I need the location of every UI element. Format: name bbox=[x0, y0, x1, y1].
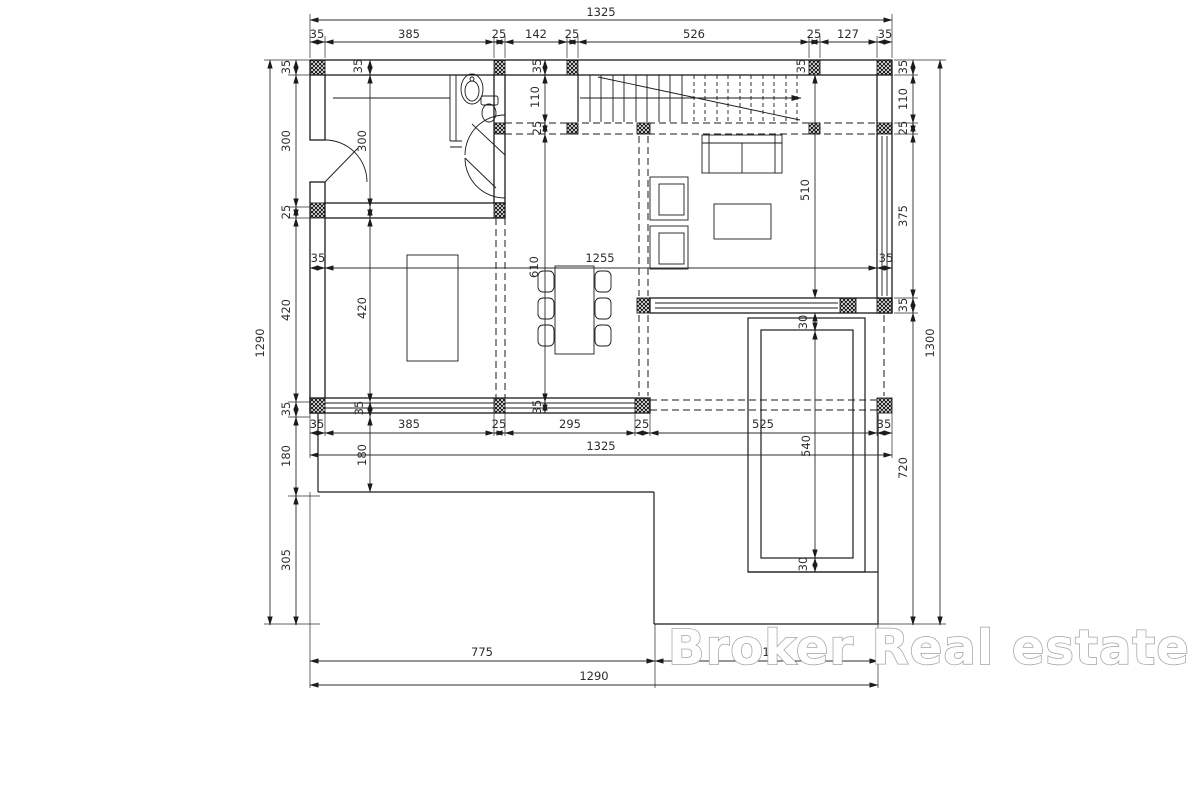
dim-label: 295 bbox=[559, 417, 581, 431]
windows bbox=[325, 136, 887, 408]
dim-label: 35 bbox=[351, 59, 365, 74]
dining-table bbox=[555, 266, 594, 354]
armchair bbox=[650, 226, 688, 269]
faucet-icon bbox=[470, 77, 474, 81]
dim-label: 25 bbox=[807, 27, 822, 41]
dim-label: 510 bbox=[798, 179, 812, 201]
dim-label: 305 bbox=[279, 549, 293, 571]
dim-label: 1300 bbox=[923, 328, 937, 357]
extension-lines bbox=[264, 14, 946, 688]
dim-label: 1255 bbox=[585, 251, 614, 265]
dim-label: 300 bbox=[279, 130, 293, 152]
dashed-walls bbox=[496, 123, 884, 410]
watermark: Broker Real estate bbox=[668, 620, 1190, 676]
dim-label: 180 bbox=[279, 445, 293, 467]
dim-label: 35 bbox=[878, 27, 893, 41]
dim-label: 25 bbox=[530, 121, 544, 136]
dining-chair bbox=[595, 325, 611, 346]
dim-label: 720 bbox=[896, 457, 910, 479]
dim-label: 1290 bbox=[253, 328, 267, 357]
dim-label: 385 bbox=[398, 417, 420, 431]
dim-label: 35 bbox=[896, 60, 910, 75]
door-symbols bbox=[325, 115, 505, 198]
dim-label: 540 bbox=[799, 435, 813, 457]
sink bbox=[461, 74, 483, 104]
dining-chair bbox=[538, 298, 554, 319]
dim-label: 775 bbox=[471, 645, 493, 659]
dining-chair bbox=[595, 298, 611, 319]
dim-label: 35 bbox=[530, 400, 544, 415]
dim-label: 25 bbox=[896, 121, 910, 136]
dim-label: 35 bbox=[794, 59, 808, 74]
dim-label: 35 bbox=[279, 402, 293, 417]
dim-label: 25 bbox=[279, 205, 293, 220]
dim-label: 300 bbox=[355, 130, 369, 152]
dim-label: 375 bbox=[896, 205, 910, 227]
dim-label: 127 bbox=[837, 27, 859, 41]
dim-label: 525 bbox=[752, 417, 774, 431]
kitchen-island bbox=[407, 255, 458, 361]
dim-label: 1290 bbox=[579, 669, 608, 683]
dim-label: 180 bbox=[355, 444, 369, 466]
staircase bbox=[578, 75, 801, 122]
dim-label: 1325 bbox=[586, 5, 615, 19]
dimension-lines bbox=[270, 20, 940, 685]
dim-label: 25 bbox=[565, 27, 580, 41]
dim-label: 420 bbox=[355, 297, 369, 319]
dining-set bbox=[538, 266, 611, 354]
dim-label: 110 bbox=[528, 86, 542, 108]
dim-label: 420 bbox=[279, 299, 293, 321]
dim-label: 110 bbox=[896, 88, 910, 110]
dim-label: 35 bbox=[311, 251, 326, 265]
living-room bbox=[650, 135, 782, 269]
coffee-table bbox=[714, 204, 771, 239]
dim-label: 35 bbox=[352, 401, 366, 416]
dining-chair bbox=[595, 271, 611, 292]
dim-label: 25 bbox=[492, 417, 507, 431]
dim-label: 35 bbox=[279, 60, 293, 75]
dim-label: 35 bbox=[310, 417, 325, 431]
dim-label: 25 bbox=[492, 27, 507, 41]
dim-label: 35 bbox=[879, 251, 894, 265]
dim-label: 25 bbox=[635, 417, 650, 431]
dim-label: 35 bbox=[530, 59, 544, 74]
dim-label: 1325 bbox=[586, 439, 615, 453]
dim-label: 35 bbox=[896, 298, 910, 313]
dining-chair bbox=[538, 325, 554, 346]
dim-label: 35 bbox=[877, 417, 892, 431]
dim-labels: 1325353852514225526251273512903530025420… bbox=[253, 5, 937, 683]
dim-label: 30 bbox=[796, 557, 810, 572]
armchair bbox=[650, 177, 688, 220]
dim-label: 35 bbox=[310, 27, 325, 41]
dim-label: 526 bbox=[683, 27, 705, 41]
bathroom bbox=[450, 74, 498, 147]
dim-label: 610 bbox=[527, 256, 541, 278]
dim-label: 142 bbox=[525, 27, 547, 41]
dim-label: 30 bbox=[796, 315, 810, 330]
floor-plan: 1325353852514225526251273512903530025420… bbox=[0, 0, 1200, 800]
dim-label: 385 bbox=[398, 27, 420, 41]
